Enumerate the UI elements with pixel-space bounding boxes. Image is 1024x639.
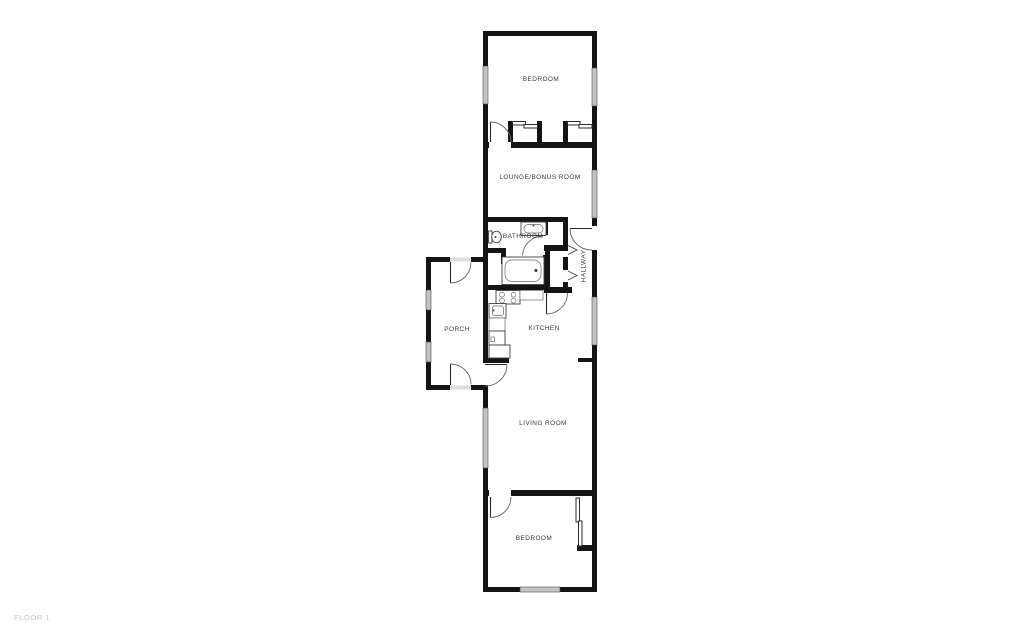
toilet-drain <box>495 236 497 238</box>
bathtub-icon <box>502 257 544 285</box>
vanity-faucet <box>533 225 535 227</box>
exterior-walls <box>426 31 597 592</box>
window-bedroom-top-right <box>592 68 597 106</box>
burner-4 <box>511 298 516 303</box>
sliding-door-closet-b2 <box>579 125 592 129</box>
door-wedge-hall-lower <box>568 271 577 280</box>
wall-utility-west <box>545 251 550 293</box>
window-bedroom-top-left <box>483 66 488 104</box>
floor-label: FLOOR 1 <box>14 613 50 622</box>
floorplan-svg: BEDROOM LOUNGE/BONUS ROOM BATHROOM HALLW… <box>0 0 1024 639</box>
door-arc-hallway <box>547 293 568 314</box>
wall-below-tub <box>488 285 544 290</box>
wall-living-bed2-a <box>483 490 489 496</box>
porch-wall-top-a <box>426 257 450 262</box>
door-wedge-hall-upper <box>568 246 577 255</box>
kitchen-sink-icon <box>489 304 506 319</box>
door-arc-bedroom-bottom <box>491 497 512 518</box>
window-porch-lower <box>426 342 431 362</box>
label-porch: PORCH <box>444 326 469 333</box>
wall-hall-closet <box>544 245 568 251</box>
label-hallway: HALLWAY <box>581 249 588 282</box>
wall-bed1-lounge-a <box>483 142 489 148</box>
floorplan-canvas: BEDROOM LOUNGE/BONUS ROOM BATHROOM HALLW… <box>0 0 1024 639</box>
porch-wall-left <box>426 257 431 390</box>
label-kitchen: KITCHEN <box>528 325 559 332</box>
door-arc-entry <box>570 229 592 251</box>
wall-kitchen-living-right <box>578 358 597 362</box>
toilet-icon <box>489 231 502 243</box>
burner-3 <box>500 298 505 303</box>
sliding-door-closet-b1 <box>568 122 581 126</box>
doors <box>451 122 593 547</box>
porch-wall-top-b <box>471 257 488 262</box>
label-lounge: LOUNGE/BONUS ROOM <box>499 174 580 181</box>
burner-2 <box>511 292 516 297</box>
sliding-door-closet-c1 <box>576 498 580 522</box>
stove-icon <box>496 291 520 305</box>
label-bedroom-bottom: BEDROOM <box>516 535 552 542</box>
door-arc-porch-kitchen <box>485 365 507 387</box>
wall-hall-west-a <box>563 222 568 245</box>
porch-wall-bottom-a <box>426 385 450 390</box>
window-porch-upper <box>426 290 431 310</box>
label-bathroom: BATHROOM <box>503 233 543 240</box>
burner-1 <box>500 292 505 297</box>
sliding-door-closet-a2 <box>524 125 538 129</box>
door-arc-bedroom-top <box>491 122 512 143</box>
kitchen-counter-top <box>520 291 543 301</box>
wall-bed1-lounge-b <box>511 142 597 148</box>
wall-lounge-bath <box>483 217 568 222</box>
stove-outline <box>496 291 520 305</box>
window-kitchen-right <box>592 297 597 345</box>
dishwasher-mark <box>491 337 495 342</box>
wall-kitchen-living-left <box>487 358 509 363</box>
window-lounge-right <box>592 170 597 218</box>
wall-hall-bottom <box>544 287 572 293</box>
door-arc-porch-top <box>451 263 472 284</box>
dishwasher-icon <box>489 331 505 345</box>
wall-hall-west-b <box>563 257 568 270</box>
window-living-left <box>483 408 488 468</box>
sliding-door-closet-c2 <box>579 521 583 546</box>
tub-faucet <box>534 269 537 272</box>
wall-living-bed2-b <box>511 490 597 496</box>
kitchen-counter-low <box>489 345 510 358</box>
label-bedroom-top: BEDROOM <box>523 76 559 83</box>
door-arc-porch-bottom <box>451 364 472 385</box>
wall-top <box>483 31 597 36</box>
label-living-room: LIVING ROOM <box>519 420 567 427</box>
window-bedroom-bottom <box>520 587 560 592</box>
threshold-porch-bottom <box>450 386 471 390</box>
kitchen-counter-mid <box>489 318 505 331</box>
kitchen-sink-faucet <box>493 310 495 312</box>
threshold-porch-top <box>450 258 471 262</box>
